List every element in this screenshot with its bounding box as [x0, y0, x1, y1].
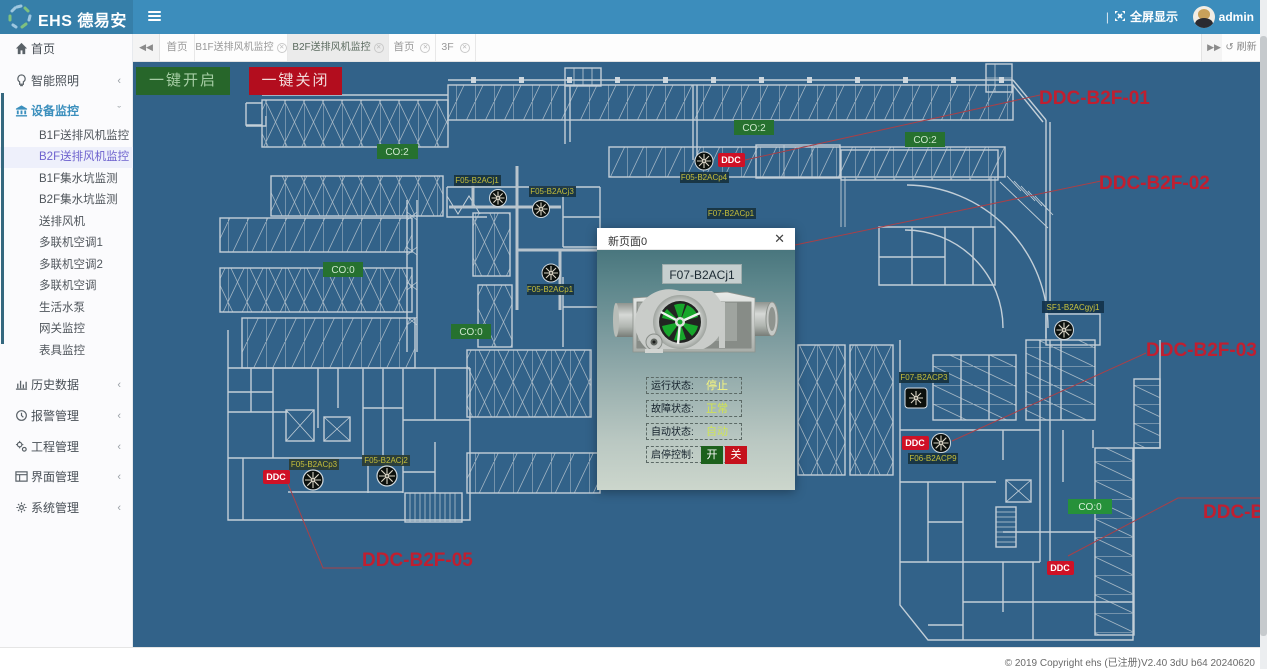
svg-text:DDC-B2F-01: DDC-B2F-01	[1039, 88, 1150, 109]
svg-text:F05-B2ACp4: F05-B2ACp4	[681, 173, 728, 182]
svg-text:DDC-B2F-02: DDC-B2F-02	[1099, 173, 1210, 194]
svg-text:F07-B2ACp1: F07-B2ACp1	[708, 209, 755, 218]
svg-text:F07-B2ACP3: F07-B2ACP3	[900, 373, 948, 382]
svg-text:CO:2: CO:2	[742, 123, 766, 134]
svg-text:CO:2: CO:2	[913, 135, 937, 146]
svg-text:F05-B2ACp3: F05-B2ACp3	[291, 460, 338, 469]
svg-text:DDC: DDC	[1050, 563, 1070, 573]
svg-text:F05-B2ACj1: F05-B2ACj1	[455, 176, 499, 185]
svg-text:F05-B2ACj2: F05-B2ACj2	[364, 456, 408, 465]
svg-text:F05-B2ACp1: F05-B2ACp1	[527, 285, 574, 294]
svg-text:CO:2: CO:2	[385, 147, 409, 158]
svg-text:SF1-B2ACgyj1: SF1-B2ACgyj1	[1047, 303, 1100, 312]
svg-text:CO:0: CO:0	[331, 265, 355, 276]
svg-text:F05-B2ACj3: F05-B2ACj3	[530, 187, 574, 196]
svg-text:CO:0: CO:0	[459, 327, 483, 338]
svg-text:CO:0: CO:0	[1078, 502, 1102, 513]
svg-text:DDC: DDC	[905, 438, 925, 448]
svg-text:DDC: DDC	[266, 472, 286, 482]
svg-text:DDC-B2F-04: DDC-B2F-04	[1203, 502, 1260, 523]
svg-text:DDC: DDC	[721, 155, 741, 165]
svg-text:F06-B2ACP9: F06-B2ACP9	[909, 454, 957, 463]
svg-text:DDC-B2F-03: DDC-B2F-03	[1146, 340, 1257, 361]
svg-text:DDC-B2F-05: DDC-B2F-05	[362, 550, 473, 571]
